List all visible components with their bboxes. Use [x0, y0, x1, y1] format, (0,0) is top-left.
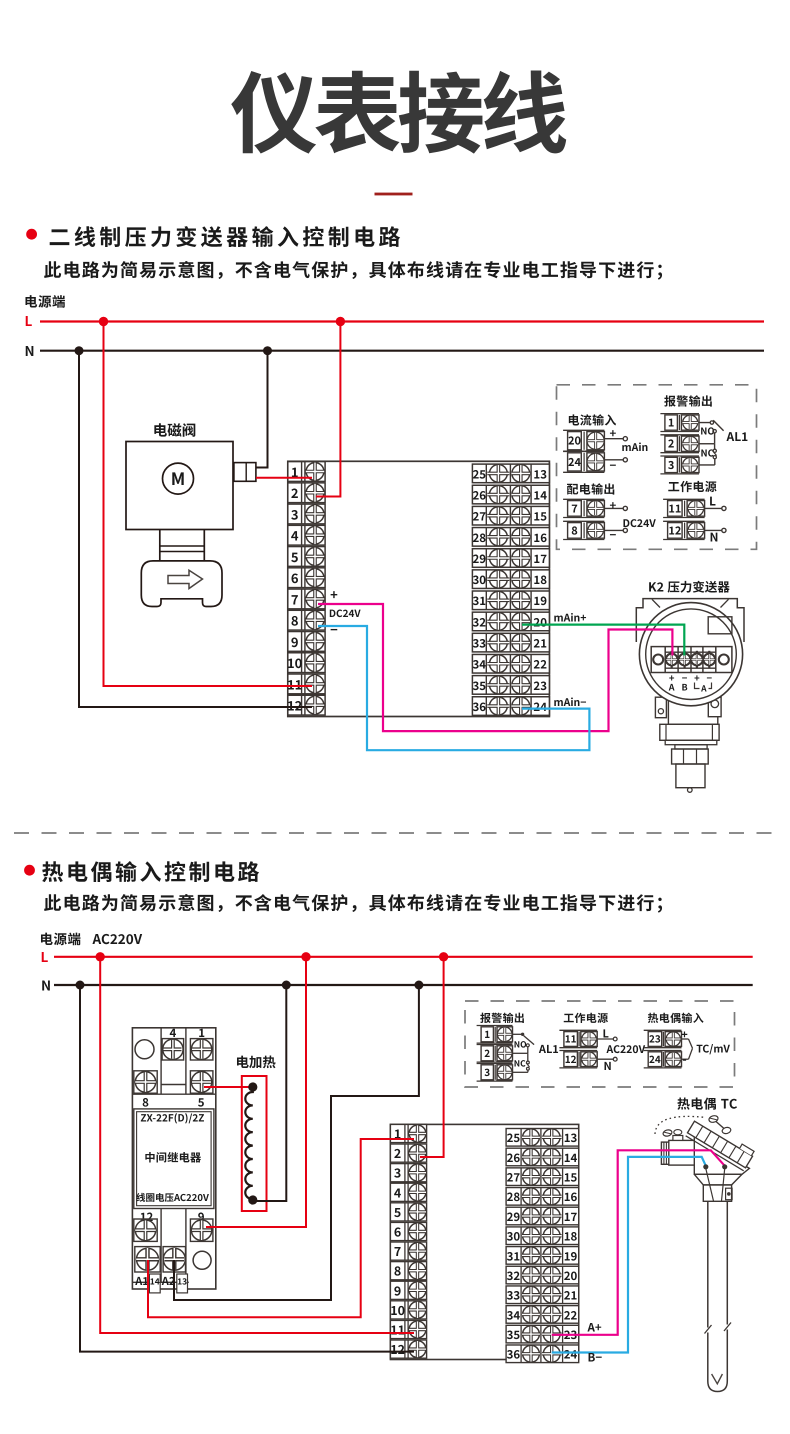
svg-text:12: 12	[390, 1339, 405, 1358]
svg-text:报警输出: 报警输出	[480, 1010, 525, 1026]
svg-text:35: 35	[507, 1327, 521, 1343]
svg-text:30: 30	[507, 1229, 521, 1245]
svg-text:35: 35	[473, 678, 487, 694]
svg-text:12: 12	[668, 522, 681, 538]
svg-text:10: 10	[287, 653, 303, 672]
svg-text:31: 31	[473, 593, 487, 609]
svg-text:13: 13	[533, 466, 547, 482]
svg-text:电源端: 电源端	[40, 928, 82, 948]
svg-text:报警输出: 报警输出	[664, 393, 713, 410]
svg-text:热电偶输入控制电路: 热电偶输入控制电路	[42, 855, 260, 887]
svg-text:9: 9	[394, 1280, 401, 1299]
svg-text:11: 11	[668, 500, 681, 516]
svg-text:A1: A1	[134, 1273, 149, 1289]
svg-text:+: +	[610, 425, 617, 441]
svg-text:线圈电压AC220V: 线圈电压AC220V	[136, 1190, 209, 1204]
svg-text:29: 29	[507, 1209, 521, 1225]
svg-text:24: 24	[564, 1347, 578, 1363]
svg-text:mAin−: mAin−	[554, 695, 587, 710]
svg-text:32: 32	[473, 614, 487, 630]
svg-text:29: 29	[473, 551, 487, 567]
svg-text:14: 14	[564, 1150, 578, 1166]
svg-text:13: 13	[177, 1275, 187, 1287]
svg-text:仪表接线: 仪表接线	[230, 45, 567, 172]
svg-text:7: 7	[571, 500, 578, 516]
svg-text:28: 28	[473, 530, 487, 546]
svg-text:4: 4	[291, 526, 299, 545]
svg-text:11: 11	[565, 1031, 577, 1046]
svg-text:24: 24	[533, 699, 547, 715]
svg-text:14: 14	[150, 1275, 160, 1287]
svg-text:26: 26	[473, 487, 487, 503]
svg-text:8: 8	[394, 1261, 401, 1280]
svg-text:A+: A+	[587, 1320, 602, 1336]
svg-text:20: 20	[564, 1268, 578, 1284]
svg-text:电加热: 电加热	[235, 1051, 276, 1071]
svg-text:32: 32	[507, 1268, 521, 1284]
svg-text:−: −	[610, 458, 617, 474]
svg-text:1: 1	[668, 415, 675, 431]
svg-text:4: 4	[394, 1182, 402, 1201]
svg-text:M: M	[171, 465, 186, 490]
svg-text:5: 5	[394, 1202, 401, 1221]
svg-text:10: 10	[390, 1300, 405, 1319]
svg-text:34: 34	[473, 657, 487, 673]
svg-text:电磁阀: 电磁阀	[153, 420, 197, 441]
svg-text:21: 21	[564, 1288, 578, 1304]
svg-text:1: 1	[484, 1026, 490, 1041]
svg-text:NC: NC	[514, 1058, 526, 1070]
svg-text:5: 5	[198, 1095, 205, 1111]
svg-text:23: 23	[649, 1031, 661, 1046]
svg-text:NO: NO	[514, 1039, 527, 1051]
svg-text:27: 27	[507, 1170, 521, 1186]
svg-text:31: 31	[507, 1248, 521, 1264]
svg-text:8: 8	[291, 611, 299, 630]
svg-text:13: 13	[564, 1130, 578, 1146]
svg-text:14: 14	[533, 487, 547, 503]
svg-text:B: B	[682, 681, 688, 694]
svg-text:DC24V: DC24V	[329, 605, 361, 620]
svg-text:28: 28	[507, 1189, 521, 1205]
svg-text:19: 19	[564, 1248, 578, 1264]
svg-text:L: L	[709, 493, 716, 510]
svg-text:B−: B−	[588, 1350, 603, 1366]
svg-text:19: 19	[533, 593, 547, 609]
svg-text:8: 8	[571, 522, 578, 538]
svg-text:23: 23	[533, 678, 547, 694]
svg-text:配电输出: 配电输出	[567, 481, 616, 498]
svg-text:30: 30	[473, 572, 487, 588]
svg-text:33: 33	[473, 636, 487, 652]
svg-text:25: 25	[507, 1130, 521, 1146]
svg-text:11: 11	[287, 674, 302, 693]
svg-text:21: 21	[533, 636, 547, 652]
svg-text:15: 15	[533, 509, 547, 525]
svg-text:18: 18	[533, 572, 547, 588]
svg-text:NC: NC	[701, 446, 714, 460]
svg-text:9: 9	[291, 632, 299, 651]
svg-text:TC/mV: TC/mV	[696, 1041, 730, 1056]
svg-text:mAin+: mAin+	[554, 611, 587, 626]
svg-text:A: A	[668, 681, 675, 694]
svg-text:6: 6	[394, 1222, 401, 1241]
svg-text:7: 7	[394, 1241, 401, 1260]
svg-text:20: 20	[533, 614, 547, 630]
svg-text:+: +	[610, 497, 617, 513]
svg-text:ZX-22F(D)/2Z: ZX-22F(D)/2Z	[140, 1110, 204, 1125]
svg-text:3: 3	[668, 457, 675, 473]
svg-text:20: 20	[568, 433, 581, 449]
svg-text:工作电源: 工作电源	[563, 1010, 608, 1026]
svg-text:热电偶输入: 热电偶输入	[648, 1010, 705, 1026]
svg-text:24: 24	[649, 1051, 661, 1066]
svg-text:L: L	[25, 310, 33, 330]
svg-text:AC220V: AC220V	[92, 928, 143, 948]
svg-text:16: 16	[564, 1189, 578, 1205]
svg-text:AC220V: AC220V	[606, 1042, 646, 1057]
svg-text:AL1: AL1	[726, 428, 749, 445]
svg-text:K2 压力变送器: K2 压力变送器	[648, 577, 730, 596]
svg-text:-: -	[682, 1051, 686, 1068]
svg-text:24: 24	[568, 454, 581, 470]
svg-text:N: N	[710, 529, 719, 546]
svg-text:3: 3	[394, 1163, 401, 1182]
svg-text:L: L	[603, 1026, 609, 1042]
svg-text:18: 18	[564, 1229, 578, 1245]
svg-text:2: 2	[484, 1045, 490, 1060]
svg-text:电源端: 电源端	[24, 291, 66, 311]
svg-text:AL1: AL1	[538, 1041, 559, 1057]
svg-text:5: 5	[291, 547, 299, 566]
svg-text:N: N	[604, 1058, 612, 1074]
svg-text:3: 3	[291, 504, 299, 523]
svg-text:−: −	[706, 671, 712, 685]
svg-text:25: 25	[473, 466, 487, 482]
svg-text:热电偶 TC: 热电偶 TC	[677, 1094, 738, 1113]
svg-text:26: 26	[507, 1150, 521, 1166]
svg-text:DC24V: DC24V	[623, 516, 657, 531]
svg-text:22: 22	[564, 1307, 578, 1323]
svg-text:A: A	[700, 683, 707, 695]
svg-text:17: 17	[533, 551, 547, 567]
svg-text:3: 3	[484, 1064, 490, 1079]
svg-text:−: −	[330, 620, 338, 639]
svg-text:mAin: mAin	[622, 440, 649, 455]
svg-text:7: 7	[291, 589, 299, 608]
svg-text:N: N	[25, 340, 35, 360]
svg-text:+: +	[694, 671, 700, 685]
svg-text:33: 33	[507, 1288, 521, 1304]
svg-text:8: 8	[142, 1095, 149, 1111]
svg-text:2: 2	[291, 483, 299, 502]
svg-text:6: 6	[291, 568, 299, 587]
svg-text:N: N	[41, 975, 51, 995]
svg-text:16: 16	[533, 530, 547, 546]
svg-text:36: 36	[473, 699, 487, 715]
svg-text:中间继电器: 中间继电器	[144, 1150, 202, 1166]
svg-text:2: 2	[394, 1143, 401, 1162]
svg-text:12: 12	[287, 696, 302, 715]
svg-text:−: −	[610, 527, 617, 543]
svg-text:11: 11	[390, 1320, 405, 1339]
svg-text:15: 15	[564, 1170, 578, 1186]
svg-text:27: 27	[473, 509, 487, 525]
svg-text:17: 17	[564, 1209, 578, 1225]
svg-text:+: +	[681, 1027, 688, 1043]
svg-text:22: 22	[533, 657, 547, 673]
svg-text:12: 12	[565, 1051, 577, 1066]
svg-text:+: +	[330, 585, 338, 604]
svg-text:36: 36	[507, 1347, 521, 1363]
svg-text:L: L	[41, 946, 49, 966]
svg-text:2: 2	[668, 436, 675, 452]
svg-text:34: 34	[507, 1307, 521, 1323]
